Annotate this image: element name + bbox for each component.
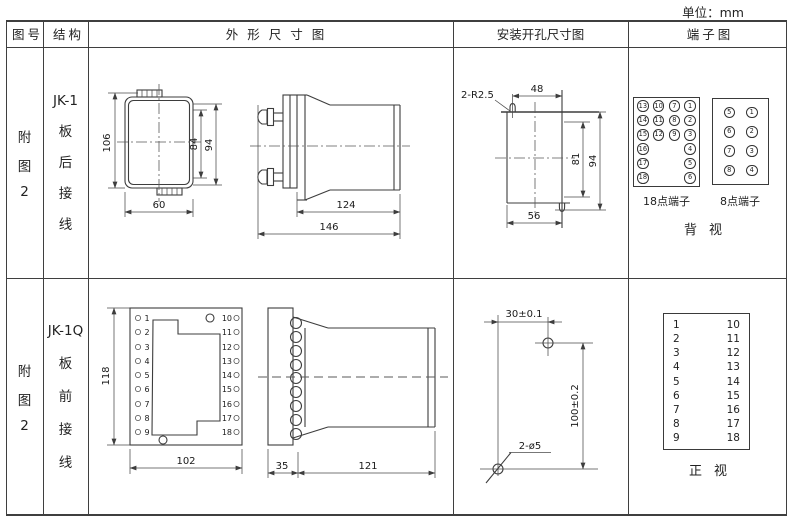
terminal-circle: 17 bbox=[637, 158, 649, 170]
row1-view-label: 背视 bbox=[648, 219, 758, 238]
terminal-row: 211 bbox=[673, 333, 740, 345]
row2-view-label: 正视 bbox=[653, 460, 763, 479]
svg-text:6: 6 bbox=[145, 385, 150, 394]
terminal-circle: 3 bbox=[684, 129, 696, 141]
slot-note: 2-R2.5 bbox=[461, 90, 494, 101]
dim-100: 100±0.2 bbox=[570, 384, 581, 427]
terminal-row: 413 bbox=[673, 361, 740, 373]
svg-text:11: 11 bbox=[222, 328, 232, 337]
terminal8-label: 8点端子 bbox=[708, 193, 772, 209]
header-terminal-drawing: 端子图 bbox=[628, 20, 789, 47]
row2-terminal-cell: 110 211 312 413 514 615 716 817 918 正视 bbox=[628, 278, 786, 515]
terminal-circle: 12 bbox=[653, 129, 665, 141]
terminal-circle: 5 bbox=[684, 158, 696, 170]
header-mounting-drawing: 安装开孔尺寸图 bbox=[453, 20, 628, 47]
row1-front-view: 106 84 94 60 bbox=[102, 84, 222, 217]
terminal-row: 918 bbox=[673, 432, 740, 444]
dim-81: 81 bbox=[571, 153, 582, 166]
terminal-circle: 6 bbox=[684, 172, 696, 184]
svg-text:13: 13 bbox=[222, 357, 232, 366]
dimension-drawing-page: 单位：mm 图号 结构 外形尺寸图 安装开孔尺寸图 端子图 附 图 2 JK-1… bbox=[0, 0, 792, 524]
terminal-circle: 15 bbox=[637, 129, 649, 141]
svg-text:9: 9 bbox=[145, 428, 150, 437]
terminal-circle: 8 bbox=[724, 165, 736, 177]
terminal-row: 514 bbox=[673, 376, 740, 388]
svg-text:8: 8 bbox=[145, 414, 150, 423]
header-outline-drawing: 外形尺寸图 bbox=[88, 20, 462, 47]
svg-text:7: 7 bbox=[145, 400, 150, 409]
svg-text:12: 12 bbox=[222, 343, 232, 352]
row1-structure: JK-1 板 后 接 线 bbox=[43, 47, 88, 278]
hole-note: 2-ø5 bbox=[519, 441, 541, 452]
dim-48: 48 bbox=[531, 84, 544, 95]
svg-text:14: 14 bbox=[222, 371, 232, 380]
svg-text:2: 2 bbox=[145, 328, 150, 337]
terminal-circle: 6 bbox=[724, 126, 736, 138]
svg-text:4: 4 bbox=[145, 357, 150, 366]
dim-60: 60 bbox=[153, 200, 166, 211]
terminal-circle: 7 bbox=[669, 100, 681, 112]
terminal-circle: 14 bbox=[637, 115, 649, 127]
svg-text:18: 18 bbox=[222, 428, 232, 437]
upper-screw-head bbox=[258, 110, 267, 124]
top-terminal-block bbox=[137, 90, 162, 97]
row1-outline-drawing: 106 84 94 60 bbox=[88, 47, 453, 278]
terminal-circle: 7 bbox=[724, 145, 736, 157]
terminal-circle: 2 bbox=[746, 126, 758, 138]
header-figure-no: 图号 bbox=[6, 20, 46, 47]
dim-124: 124 bbox=[336, 200, 355, 211]
row2-figure-no: 附 图 2 bbox=[6, 278, 43, 515]
terminal-circle: 4 bbox=[684, 143, 696, 155]
unit-label: 单位：mm bbox=[640, 2, 786, 21]
bottom-terminal-block bbox=[157, 188, 182, 195]
terminal-circle: 4 bbox=[746, 165, 758, 177]
row1-terminal-cell: 131071 141182 151293 164 175 186 51 62 7… bbox=[628, 47, 786, 278]
terminal-circle: 11 bbox=[653, 115, 665, 127]
terminal-circle: 10 bbox=[653, 100, 665, 112]
row1-figure-no: 附 图 2 bbox=[6, 47, 43, 278]
svg-text:15: 15 bbox=[222, 385, 232, 394]
board-stepped-cutout bbox=[152, 320, 220, 435]
svg-text:3: 3 bbox=[145, 343, 150, 352]
header-structure: 结构 bbox=[43, 20, 91, 47]
dim-106: 106 bbox=[102, 133, 113, 152]
dim-35: 35 bbox=[276, 461, 289, 472]
row2-front-view: 118 1 2 3 4 5 6 7 8 9 10 11 12 13 14 15 … bbox=[101, 308, 242, 474]
terminal-row: 110 bbox=[673, 319, 740, 331]
terminal-circle: 8 bbox=[669, 115, 681, 127]
mounting-hole-top bbox=[206, 314, 214, 322]
terminal-circle: 1 bbox=[746, 107, 758, 119]
svg-text:10: 10 bbox=[222, 314, 232, 323]
row2-mounting-drawing: 30±0.1 100±0.2 2-ø5 bbox=[453, 278, 628, 515]
terminal-circle: 13 bbox=[637, 100, 649, 112]
svg-text:16: 16 bbox=[222, 400, 232, 409]
row1-mounting-drawing: 48 2-R2.5 81 94 56 bbox=[453, 47, 628, 278]
terminal-row: 716 bbox=[673, 404, 740, 416]
terminal-table-18pt: 110 211 312 413 514 615 716 817 918 bbox=[663, 313, 750, 450]
svg-text:5: 5 bbox=[145, 371, 150, 380]
row1-side-view: 124 146 bbox=[250, 95, 410, 239]
terminal-row: 312 bbox=[673, 347, 740, 359]
row2-side-view: 35 121 bbox=[258, 308, 448, 478]
terminal-circle: 9 bbox=[669, 129, 681, 141]
dim-118: 118 bbox=[101, 366, 112, 385]
mounting-hole-bottom bbox=[159, 436, 167, 444]
terminal-circle: 18 bbox=[637, 172, 649, 184]
dim-102: 102 bbox=[176, 456, 195, 467]
table-right-border bbox=[786, 20, 787, 516]
terminal18-label: 18点端子 bbox=[628, 193, 705, 209]
terminal-row: 615 bbox=[673, 390, 740, 402]
svg-text:17: 17 bbox=[222, 414, 232, 423]
dim-56: 56 bbox=[528, 211, 541, 222]
dim-121: 121 bbox=[358, 461, 377, 472]
dim-84: 84 bbox=[189, 138, 200, 151]
row2-outline-drawing: 118 1 2 3 4 5 6 7 8 9 10 11 12 13 14 15 … bbox=[88, 278, 453, 515]
terminal-circle: 1 bbox=[684, 100, 696, 112]
terminal-circle: 5 bbox=[724, 107, 736, 119]
dim-94: 94 bbox=[204, 139, 215, 152]
terminal-block-18pt: 131071 141182 151293 164 175 186 bbox=[633, 97, 700, 187]
dim-30: 30±0.1 bbox=[505, 309, 542, 320]
terminal-circle: 2 bbox=[684, 115, 696, 127]
terminal-circle: 3 bbox=[746, 145, 758, 157]
terminal-block-8pt: 51 62 73 84 bbox=[712, 98, 769, 185]
dim-146: 146 bbox=[319, 222, 338, 233]
lower-screw-head bbox=[258, 170, 267, 184]
terminal-circle: 16 bbox=[637, 143, 649, 155]
row2-structure: JK-1Q 板 前 接 线 bbox=[43, 278, 88, 515]
dim-94-mounting: 94 bbox=[588, 155, 599, 168]
svg-text:1: 1 bbox=[145, 314, 150, 323]
terminal-row: 817 bbox=[673, 418, 740, 430]
